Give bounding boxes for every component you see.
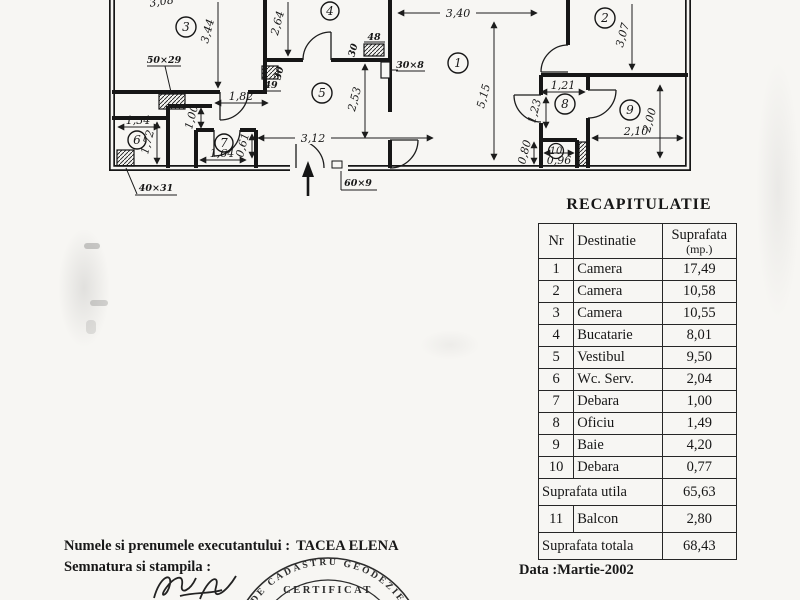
subtotal-value: 65,63 <box>662 479 736 506</box>
cell-nr: 9 <box>539 435 574 457</box>
col-header-dest: Destinatie <box>574 224 662 259</box>
cell-dest: Debara <box>574 457 662 479</box>
col-header-suprafata: Suprafata (mp.) <box>662 224 736 259</box>
cell-nr: 10 <box>539 457 574 479</box>
dim-label: 0,80 <box>515 139 534 166</box>
col-header-nr: Nr <box>539 224 574 259</box>
scan-smudge <box>84 243 100 249</box>
size-label: 30 <box>347 42 361 58</box>
cell-val: 1,00 <box>662 391 736 413</box>
cell-nr: 11 <box>539 506 574 533</box>
subtotal-label: Suprafata utila <box>539 479 663 506</box>
cell-dest: Camera <box>574 259 662 281</box>
recap-title: RECAPITULATIE <box>536 196 742 214</box>
cell-nr: 8 <box>539 413 574 435</box>
cell-val: 10,58 <box>662 281 736 303</box>
dim-label: 1,21 <box>551 79 576 92</box>
cell-dest: Wc. Serv. <box>574 369 662 391</box>
room-number: 1 <box>454 56 462 70</box>
cell-dest: Camera <box>574 281 662 303</box>
dim-label: 5,15 <box>474 83 493 110</box>
size-label: 30 <box>273 65 287 81</box>
size-label: 40×31 <box>139 183 173 194</box>
room-number: 3 <box>182 20 190 34</box>
cell-dest: Vestibul <box>574 347 662 369</box>
room-number: 4 <box>325 4 334 18</box>
table-row: 2Camera10,58 <box>539 281 737 303</box>
size-label: 49 <box>264 80 278 91</box>
scan-smudge <box>420 330 480 360</box>
room-number: 9 <box>626 103 634 117</box>
table-row: 6Wc. Serv.2,04 <box>539 369 737 391</box>
size-label: 30×8 <box>396 60 424 71</box>
recap-table: Nr Destinatie Suprafata (mp.) 1Camera17,… <box>538 223 737 560</box>
scanned-page: 3,08 3,44 2,64 3,40 3,07 5,15 2,53 1,82 … <box>0 0 800 600</box>
room-number: 7 <box>220 136 228 150</box>
cell-nr: 4 <box>539 325 574 347</box>
room-number: 6 <box>133 133 141 147</box>
cell-val: 4,20 <box>662 435 736 457</box>
dim-label: 3,40 <box>446 7 471 20</box>
table-row: 7Debara1,00 <box>539 391 737 413</box>
dim-label: 1,34 <box>126 114 151 127</box>
dim-label: 1,82 <box>229 90 254 103</box>
room-number: 2 <box>600 11 609 25</box>
dim-label: 2,10 <box>623 125 649 138</box>
subtotal-row: Suprafata utila65,63 <box>539 479 737 506</box>
table-header-row: Nr Destinatie Suprafata (mp.) <box>539 224 737 259</box>
interior-walls <box>112 0 688 168</box>
cell-dest: Balcon <box>574 506 662 533</box>
cell-val: 2,80 <box>662 506 736 533</box>
floor-plan-drawing: 3,08 3,44 2,64 3,40 3,07 5,15 2,53 1,82 … <box>0 0 800 210</box>
cell-val: 2,04 <box>662 369 736 391</box>
cell-dest: Oficiu <box>574 413 662 435</box>
size-label: 60×9 <box>344 178 372 189</box>
dim-label: 3,07 <box>613 22 632 49</box>
table-row: 4Bucatarie8,01 <box>539 325 737 347</box>
dim-label: 1,23 <box>525 98 544 125</box>
scan-smudge <box>90 300 108 306</box>
dim-label: 2,53 <box>345 86 364 114</box>
room-number: 10 <box>550 146 563 157</box>
size-label: 50×29 <box>147 55 182 66</box>
table-row: 8Oficiu1,49 <box>539 413 737 435</box>
room-number: 5 <box>318 86 326 100</box>
table-row: 3Camera10,55 <box>539 303 737 325</box>
cell-val: 17,49 <box>662 259 736 281</box>
dim-label: 2,64 <box>268 10 287 38</box>
table-row: 10Debara0,77 <box>539 457 737 479</box>
cell-dest: Debara <box>574 391 662 413</box>
dim-label: 3,08 <box>148 0 174 10</box>
scan-smudge <box>58 228 110 348</box>
cell-val: 0,77 <box>662 457 736 479</box>
total-label: Suprafata totala <box>539 533 663 560</box>
cell-nr: 6 <box>539 369 574 391</box>
date-line: Data :Martie-2002 <box>519 562 634 579</box>
cell-nr: 1 <box>539 259 574 281</box>
cell-val: 8,01 <box>662 325 736 347</box>
dim-label: 3,12 <box>301 132 326 145</box>
dim-label: 3,44 <box>198 18 217 45</box>
recap-section: RECAPITULATIE Nr Destinatie Suprafata (m… <box>536 196 742 560</box>
round-stamp: DE CADASTRU GEODEZIE CERTIFICAT <box>228 551 428 600</box>
total-value: 68,43 <box>662 533 736 560</box>
table-row: 1Camera17,49 <box>539 259 737 281</box>
total-row: Suprafata totala68,43 <box>539 533 737 560</box>
cell-val: 10,55 <box>662 303 736 325</box>
cell-dest: Bucatarie <box>574 325 662 347</box>
cell-nr: 2 <box>539 281 574 303</box>
cell-val: 1,49 <box>662 413 736 435</box>
table-row: 11Balcon2,80 <box>539 506 737 533</box>
col-header-unit: (mp.) <box>666 244 733 255</box>
scan-smudge <box>86 320 96 334</box>
room-number: 8 <box>561 97 569 111</box>
cell-nr: 3 <box>539 303 574 325</box>
stamp-center-text: CERTIFICAT <box>283 585 373 596</box>
table-row: 9Baie4,20 <box>539 435 737 457</box>
table-row: 5Vestibul9,50 <box>539 347 737 369</box>
entry-arrow <box>302 161 314 196</box>
cell-nr: 5 <box>539 347 574 369</box>
outer-walls <box>112 0 688 168</box>
dim-label: 0,61 <box>233 132 252 159</box>
cell-val: 9,50 <box>662 347 736 369</box>
cell-dest: Baie <box>574 435 662 457</box>
cell-dest: Camera <box>574 303 662 325</box>
cell-nr: 7 <box>539 391 574 413</box>
size-label: 48 <box>367 32 381 43</box>
